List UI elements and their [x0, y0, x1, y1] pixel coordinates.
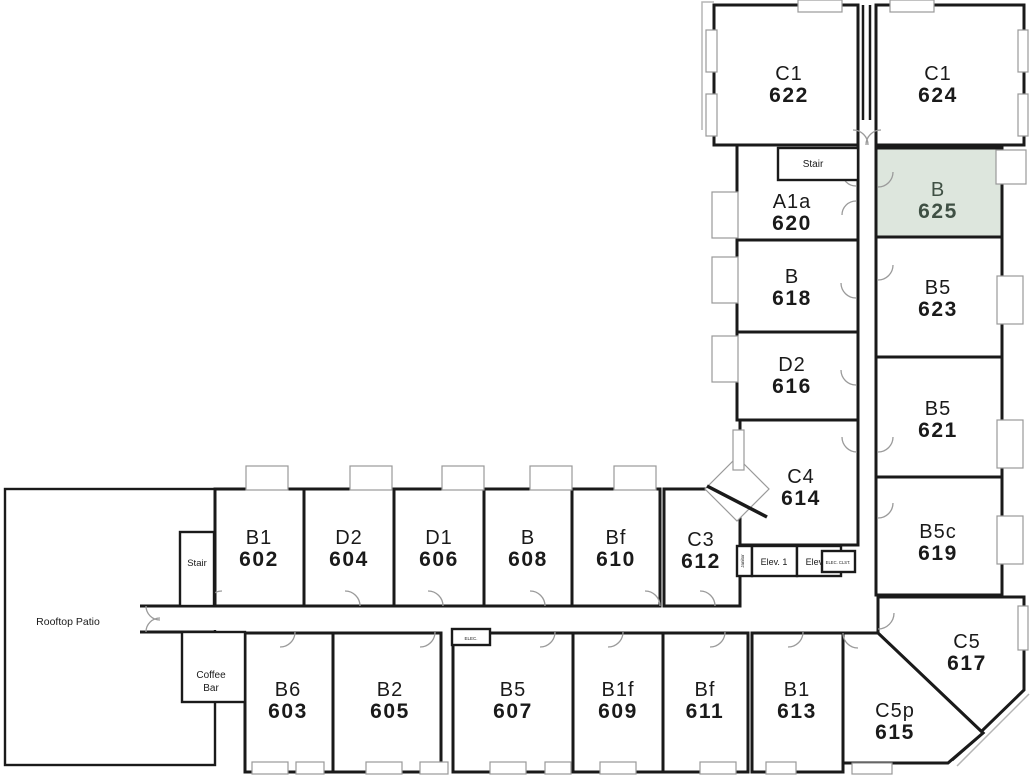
unit-type-label: B1f	[601, 679, 634, 701]
unit-623[interactable]: B5623	[876, 237, 1002, 357]
area-stair-bottom-outline	[180, 532, 214, 606]
area-coffee-bar: CoffeeBar	[182, 632, 245, 702]
floor-plan-canvas: Rooftop PatioC1622C1624A1a620B625B618B56…	[0, 0, 1030, 775]
floor-plan: Rooftop PatioC1622C1624A1a620B625B618B56…	[0, 0, 1030, 775]
window-mark	[712, 336, 738, 382]
unit-number-label: 604	[329, 548, 369, 571]
window-mark	[997, 276, 1023, 324]
window-mark	[706, 30, 717, 72]
unit-number-label: 606	[419, 548, 459, 571]
window-mark	[706, 94, 717, 136]
unit-number-label: 619	[918, 542, 958, 565]
area-elec: ELEC.	[452, 629, 490, 645]
unit-606[interactable]: D1606	[394, 489, 484, 606]
area-coffee-bar-label: Bar	[203, 683, 219, 694]
unit-625[interactable]: B625	[876, 148, 1002, 237]
unit-616[interactable]: D2616	[737, 332, 858, 420]
corridor-stub	[138, 604, 218, 630]
window-mark	[852, 763, 892, 774]
unit-number-label: 617	[947, 652, 987, 675]
window-mark	[712, 192, 738, 238]
window-mark	[420, 762, 448, 774]
area-elev-1: Elev. 1	[752, 546, 797, 576]
unit-number-label: 612	[681, 550, 721, 573]
unit-type-label: B	[931, 179, 945, 201]
unit-number-label: 608	[508, 548, 548, 571]
window-mark	[798, 0, 842, 12]
window-mark	[246, 466, 288, 490]
window-mark	[614, 466, 656, 490]
unit-type-label: Bf	[695, 679, 716, 701]
window-mark	[1018, 94, 1028, 136]
window-mark	[700, 762, 736, 774]
unit-type-label: C4	[787, 466, 815, 488]
window-mark	[366, 762, 402, 774]
unit-type-label: B	[521, 527, 535, 549]
unit-number-label: 610	[596, 548, 636, 571]
unit-type-label: B2	[377, 679, 403, 701]
unit-type-label: B	[785, 266, 799, 288]
unit-number-label: 621	[918, 419, 958, 442]
area-elec-clst-label: ELEC. CLST.	[826, 560, 851, 565]
area-janitor: Janitor	[737, 546, 752, 576]
unit-type-label: D2	[335, 527, 363, 549]
area-coffee-bar-label: Coffee	[196, 670, 226, 681]
unit-number-label: 624	[918, 84, 958, 107]
unit-number-label: 611	[686, 700, 725, 723]
area-stair-bottom-label: Stair	[187, 558, 207, 569]
window-mark	[545, 762, 571, 774]
unit-number-label: 605	[370, 700, 410, 723]
unit-number-label: 622	[769, 84, 809, 107]
window-mark	[530, 466, 572, 490]
area-elev-1-label: Elev. 1	[761, 557, 788, 567]
window-mark	[890, 0, 934, 12]
unit-607[interactable]: B5607	[453, 633, 573, 772]
unit-618[interactable]: B618	[737, 240, 858, 332]
unit-type-label: B1	[246, 527, 272, 549]
window-mark	[490, 762, 526, 774]
area-stair-bottom: Stair	[180, 532, 214, 606]
window-mark	[1018, 606, 1028, 650]
unit-number-label: 613	[777, 700, 817, 723]
unit-type-label: D1	[425, 527, 453, 549]
unit-619[interactable]: B5c619	[876, 477, 1002, 595]
area-elec-clst: ELEC. CLST.	[822, 551, 855, 572]
window-mark	[712, 257, 738, 303]
window-mark	[600, 762, 636, 774]
unit-number-label: 607	[493, 700, 533, 723]
unit-type-label: B5	[925, 398, 951, 420]
unit-type-label: C5p	[875, 700, 915, 722]
unit-603[interactable]: B6603	[245, 633, 333, 772]
unit-609[interactable]: B1f609	[573, 633, 663, 772]
unit-number-label: 602	[239, 548, 279, 571]
unit-613[interactable]: B1613	[752, 633, 843, 772]
unit-624[interactable]: C1624	[876, 5, 1024, 145]
unit-number-label: 620	[772, 212, 812, 235]
unit-number-label: 609	[598, 700, 638, 723]
unit-type-label: B5c	[919, 521, 956, 543]
window-mark	[442, 466, 484, 490]
area-stair-top-label: Stair	[803, 159, 824, 170]
unit-type-label: D2	[778, 354, 806, 376]
unit-type-label: B5	[925, 277, 951, 299]
unit-622[interactable]: C1622	[714, 5, 858, 145]
window-mark	[350, 466, 392, 490]
unit-type-label: C1	[775, 63, 803, 85]
unit-type-label: B5	[500, 679, 526, 701]
unit-610[interactable]: Bf610	[572, 489, 660, 606]
unit-type-label: B6	[275, 679, 301, 701]
unit-602[interactable]: B1602	[215, 489, 304, 606]
unit-621[interactable]: B5621	[876, 357, 1002, 477]
unit-type-label: A1a	[773, 191, 812, 213]
unit-type-label: C5	[953, 631, 981, 653]
window-mark	[1018, 30, 1028, 72]
window-mark	[996, 150, 1026, 184]
unit-604[interactable]: D2604	[304, 489, 394, 606]
unit-number-label: 623	[918, 298, 958, 321]
window-mark	[766, 762, 796, 774]
unit-608[interactable]: B608	[484, 489, 572, 606]
unit-611[interactable]: Bf611	[663, 633, 748, 772]
window-mark	[296, 762, 324, 774]
unit-605[interactable]: B2605	[333, 633, 441, 772]
unit-number-label: 618	[772, 287, 812, 310]
area-stair-top: Stair	[778, 148, 858, 180]
window-mark	[733, 430, 744, 470]
unit-number-label: 614	[781, 487, 821, 510]
area-elec-label: ELEC.	[464, 636, 477, 641]
area-janitor-label: Janitor	[740, 554, 745, 568]
unit-type-label: Bf	[606, 527, 627, 549]
unit-number-label: 615	[875, 721, 915, 744]
unit-number-label: 616	[772, 375, 812, 398]
unit-type-label: C3	[687, 529, 715, 551]
window-mark	[997, 420, 1023, 468]
unit-type-label: B1	[784, 679, 810, 701]
unit-number-label: 603	[268, 700, 308, 723]
window-mark	[252, 762, 288, 774]
unit-number-label: 625	[918, 200, 958, 223]
window-mark	[997, 516, 1023, 564]
area-rooftop-patio-label: Rooftop Patio	[36, 616, 100, 628]
unit-type-label: C1	[924, 63, 952, 85]
